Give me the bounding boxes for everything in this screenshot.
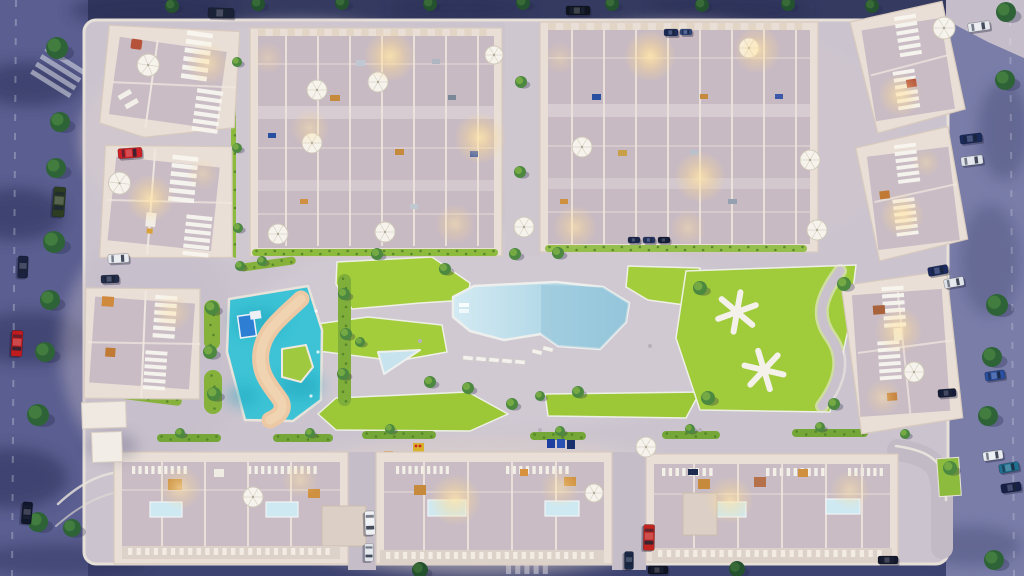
hedge-dot [543,436,546,439]
car-roof [13,339,22,346]
car-roof [366,549,372,554]
dash [781,550,785,557]
building-nw-upper [95,13,248,149]
pool-steps [459,309,469,313]
car-roof [934,267,940,274]
car-roof [944,390,949,396]
plaza-parasol [636,437,656,457]
dash [496,552,500,559]
hedge-dot [693,246,696,249]
furniture [728,199,737,204]
terrace-parasol [807,220,827,240]
dash [465,29,472,36]
car-roof [632,238,635,241]
hedge-dot [765,246,768,249]
tree-highlight [338,369,345,376]
block-south-1 [114,452,366,564]
stair-core [322,506,366,546]
window-light [252,42,284,74]
sun-lounger [476,356,486,361]
tree-highlight [838,278,846,286]
car-rear-window [645,238,646,242]
building-east-mid [841,270,964,434]
car-roof [654,567,659,572]
car-roof [107,276,112,281]
dash [435,29,442,36]
dash [386,552,390,559]
car-windshield [660,567,663,573]
hedge-dot [805,433,808,436]
dash [151,466,154,474]
tree-highlight [901,430,907,436]
hedge-dot [792,249,795,252]
hedge-dot [383,250,386,253]
car-windshield [112,276,115,282]
block-north-left [250,28,506,256]
car-windshield [581,7,585,14]
tree-highlight [556,427,562,433]
manhole [418,339,422,343]
dash [703,468,706,476]
dash [265,548,269,555]
tree-highlight [986,552,998,564]
moving-car [878,556,900,566]
hedge-dot [419,250,422,253]
kiosk-dot [415,445,418,448]
tree-highlight [507,399,514,406]
dash [394,552,398,559]
dash [258,29,265,36]
tree-highlight [573,387,580,394]
dash [446,466,449,474]
car-roof [54,196,64,204]
dash [779,23,787,30]
dash [332,29,339,36]
dash [450,29,457,36]
car-roof [991,372,997,379]
hedge-dot [212,334,215,337]
building-w-lower [78,281,207,406]
tree-highlight [980,408,992,420]
tree-highlight [236,262,242,268]
hedge-dot [747,246,750,249]
window-light [670,210,706,246]
dash [746,550,750,557]
car-roof [662,238,665,241]
parasol-pole [645,446,647,448]
tree-highlight [339,289,346,296]
tree-highlight [425,377,432,384]
dash [825,550,829,557]
dash [427,466,430,474]
dash [257,548,261,555]
dash [433,466,436,474]
dash [420,29,427,36]
dash [867,468,870,476]
car-rear-window [13,334,22,338]
hedge-dot [593,249,596,252]
tree-highlight [730,562,740,572]
parked-car [19,501,33,525]
tree-highlight [52,114,64,126]
dash [522,552,526,559]
dash [814,468,817,476]
dash [274,466,277,474]
hedge-dot [738,249,741,252]
hedge-dot [756,249,759,252]
dash [188,548,192,555]
furniture [268,133,276,138]
dash [539,466,542,474]
lawn [545,392,700,418]
tree-highlight [984,349,996,361]
kiosk-block [82,401,127,429]
tree-highlight [37,344,49,356]
dash [563,23,571,30]
dash [132,466,135,474]
car-roof [216,9,223,16]
hedge-dot [392,253,395,256]
hedge-dot [255,250,258,253]
hedge-dot [456,250,459,253]
car-windshield [626,563,633,566]
tree-highlight [166,0,174,8]
dash [684,550,688,557]
dash [396,466,399,474]
hedge-dot [277,435,280,438]
hedge-dot [695,435,698,438]
hedge-dot [648,249,651,252]
tree-highlight [998,4,1010,16]
hedge-dot [412,435,415,438]
hedge-dot [483,253,486,256]
window-light [158,466,202,510]
dash [300,548,304,555]
hedge-dot [393,435,396,438]
dash [437,552,441,559]
dash [462,552,466,559]
sun-lounger [515,359,525,364]
hedge-dot [843,433,846,436]
dash [669,468,672,476]
dash [513,552,517,559]
hedge-dot [704,432,707,435]
hedge-dot [428,253,431,256]
hedge-dot [611,249,614,252]
block-south-2 [376,452,612,564]
window-light [435,204,475,244]
dash [798,550,802,557]
parked-car [363,544,374,564]
window-light [706,476,754,524]
hedge-dot [346,250,349,253]
dash [833,550,837,557]
car-roof [19,263,26,269]
furniture [432,59,440,64]
car-windshield [224,9,228,17]
hedge-dot [384,432,387,435]
furniture [214,469,224,477]
window-light [454,112,506,164]
dash [231,548,235,555]
dash [733,23,741,30]
terrace-table [146,228,152,234]
dash [428,552,432,559]
dash [214,548,218,555]
dash [547,552,551,559]
dash [302,29,309,36]
hedge-dot [234,207,237,210]
hedge-dot [711,246,714,249]
tree-highlight [234,224,240,230]
dash [590,552,594,559]
dash [402,466,405,474]
tree-highlight [510,249,517,256]
car-rear-window [660,238,661,242]
dash [513,466,516,474]
hedge-dot [355,253,358,256]
hedge-dot [824,433,827,436]
hedge-dot [666,432,669,435]
tree-highlight [515,167,522,174]
tree-highlight [372,249,379,256]
hedge-dot [575,249,578,252]
hedge-dot [657,246,660,249]
dash [222,548,226,555]
hedge-body [362,431,436,439]
dash [137,548,141,555]
tree-highlight [341,329,348,336]
dash [317,29,324,36]
car-roof [967,135,973,142]
courtyard-car [643,237,657,245]
dash [794,468,797,476]
furniture [300,199,308,204]
car-windshield [890,557,893,563]
tree-highlight [553,248,560,255]
dash [816,550,820,557]
hedge-south [273,434,333,442]
dash [479,552,483,559]
hedge-dot [437,250,440,253]
parasol-pole [316,89,318,91]
hedge-dot [234,170,237,173]
dash [408,466,411,474]
furniture [414,485,426,495]
tree-highlight [686,425,692,431]
window-light [282,462,318,498]
dash [403,552,407,559]
dash [682,468,685,476]
dash [772,550,776,557]
car-windshield [665,238,667,242]
dash [197,548,201,555]
hedge-dot [833,430,836,433]
dash [240,548,244,555]
dash [656,23,664,30]
car-rear-window [881,557,883,563]
hedge-dot [345,362,348,365]
tree-highlight [306,429,312,435]
parasol-pole [377,81,379,83]
car-rear-window [941,390,944,396]
parasol-pole [593,492,595,494]
dash [880,468,883,476]
car-rear-window [630,238,631,242]
kiosk-dot [419,445,422,448]
dash [763,550,767,557]
hedge-dot [345,381,348,384]
furniture [618,150,627,156]
dash [154,548,158,555]
hedge-dot [210,374,213,377]
dash [625,23,633,30]
hedge-body [273,434,333,442]
car-roof [115,255,121,261]
hedge-dot [684,249,687,252]
hedge-south [792,429,868,437]
dash [325,548,329,555]
furniture [520,469,528,476]
dash [662,468,665,476]
kiosk-block [91,431,122,462]
car-windshield [650,238,652,242]
hedge-dot [474,250,477,253]
dash [162,548,166,555]
parked-car [108,253,131,265]
dash [573,552,577,559]
hedge-dot [580,436,583,439]
hedge-dot [342,277,345,280]
furniture [330,95,340,101]
furniture [448,95,456,100]
dash [471,552,475,559]
dash [317,548,321,555]
pool-steps [459,303,469,307]
tree-highlight [42,292,54,304]
dash [873,468,876,476]
hedge-dot [410,253,413,256]
parasol-pole [384,231,386,233]
tree-highlight [816,423,822,429]
dash [539,552,543,559]
hedge-dot [345,343,348,346]
courtyard-car [628,237,642,245]
furniture [775,94,783,99]
dash [145,466,148,474]
hedge-dot [345,325,348,328]
tree-highlight [29,406,42,419]
recycle-bin [567,440,575,449]
hedge-dot [209,324,212,327]
window-slats [396,466,449,474]
moving-car [566,6,592,17]
car-rear-window [651,567,653,573]
sun-lounger [463,355,473,360]
car-windshield [121,255,125,262]
hedge-dot [548,246,551,249]
hedge-dot [639,246,642,249]
hedge-dot [169,438,172,441]
dash [361,29,368,36]
dash [581,552,585,559]
dash [506,466,509,474]
corridor [548,104,810,117]
hedge-dot [852,430,855,433]
sun-lounger [489,357,499,362]
dash [171,548,175,555]
dash [530,552,534,559]
dash [773,468,776,476]
tree-highlight [386,425,392,431]
parasol-pole [809,159,811,161]
hedge-dot [273,250,276,253]
tree-highlight [48,39,61,52]
car-rear-window [682,30,683,34]
dash [709,468,712,476]
tree-highlight [233,144,239,150]
dash [564,552,568,559]
car-roof [950,279,956,286]
furniture [688,469,698,475]
parasol-pole [581,146,583,148]
dash [488,552,492,559]
car-roof [574,7,580,13]
scene-canvas [0,0,1024,576]
tree-highlight [988,296,1001,309]
hedge-dot [630,249,633,252]
dash [868,550,872,557]
parasol-pole [816,229,818,231]
terrace-parasol [572,137,592,157]
dash [248,548,252,555]
car-rear-window [212,9,215,17]
sun-lounger [502,358,512,363]
corridor [258,180,494,191]
furniture [560,199,568,204]
terrace-parasol [485,46,503,64]
car-roof [975,23,982,30]
parked-car [16,256,29,280]
terrace-parasol [307,80,327,100]
hedge-dot [292,250,295,253]
dash [445,552,449,559]
hedge-dot [365,432,368,435]
car-rear-window [54,191,64,195]
car-roof [1005,464,1011,471]
recycle-bin [557,439,565,448]
dash [821,468,824,476]
hedge-dot [795,430,798,433]
parked-car [101,275,121,286]
parked-car [623,552,634,572]
car-rear-window [104,276,106,282]
hedge-dot [375,435,378,438]
tree-highlight [944,462,952,470]
terrace-plant [130,39,142,50]
car-roof [684,30,687,33]
furniture [395,149,404,155]
tree-highlight [258,257,264,263]
furniture [356,60,365,66]
furniture [798,469,808,477]
furniture [700,94,708,99]
window-light [674,151,726,203]
hedge-dot [234,243,237,246]
tree-highlight [866,0,874,8]
car-rear-window [570,7,573,14]
car-rear-window [626,554,633,556]
